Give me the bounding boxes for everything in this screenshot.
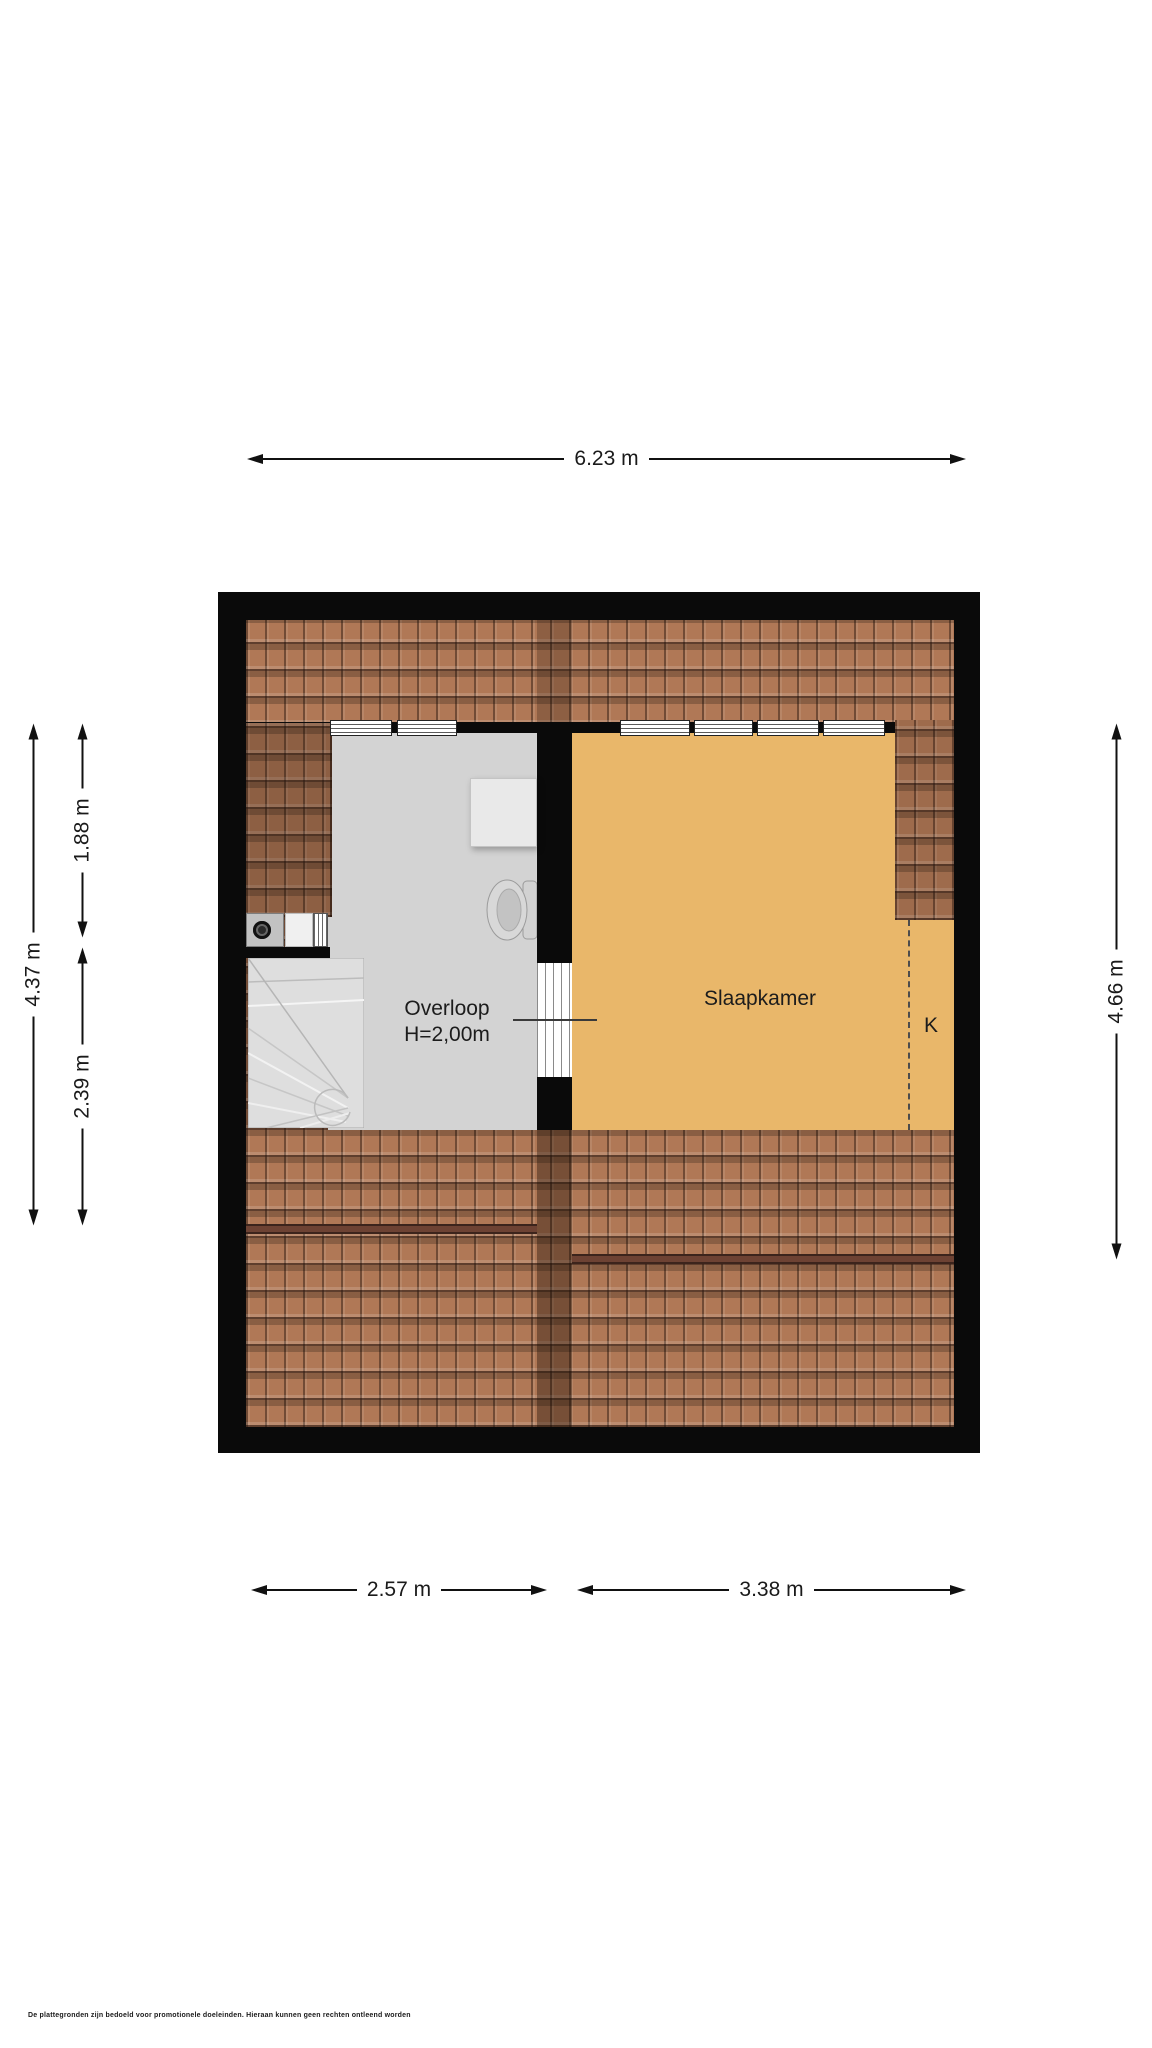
dimension-left-outer: 4.37 m	[21, 724, 46, 1226]
arrow-up-icon	[77, 723, 87, 739]
dimension-line	[32, 1017, 34, 1210]
window-slaapkamer-1	[620, 720, 690, 736]
stair-wall	[246, 947, 330, 958]
dimension-left-upper: 1.88 m	[70, 724, 95, 938]
dimension-right: 4.66 m	[1104, 724, 1129, 1260]
arrow-right-icon	[950, 1585, 966, 1595]
dimension-line	[267, 1589, 357, 1591]
center-wall-lower	[537, 1077, 572, 1130]
arrow-up-icon	[28, 723, 38, 739]
dimension-bottom-right-value: 3.38 m	[729, 1577, 813, 1602]
arrow-left-icon	[577, 1585, 593, 1595]
slaapkamer-label: Slaapkamer	[640, 986, 880, 1012]
storage-cabinet	[285, 913, 313, 947]
dimension-top-value: 6.23 m	[564, 446, 648, 471]
arrow-left-icon	[247, 454, 263, 464]
roof-ridge-right	[572, 1254, 954, 1264]
footer-disclaimer: De plattegronden zijn bedoeld voor promo…	[28, 2012, 411, 2019]
roof-seam-shadow-bottom	[537, 1130, 572, 1427]
arrow-right-icon	[531, 1585, 547, 1595]
roof-slope-right-patch	[895, 720, 954, 920]
floor-plan-page: Overloop H=2,00m Slaapkamer K 6.23 m 2.5…	[0, 0, 1152, 2048]
window-slaapkamer-3	[757, 720, 819, 736]
dimension-bottom-left: 2.57 m	[251, 1577, 547, 1602]
boiler-drum-icon	[253, 921, 271, 939]
floorplan-interior: Overloop H=2,00m Slaapkamer K	[246, 620, 954, 1427]
arrow-down-icon	[77, 922, 87, 938]
window-overloop-2	[397, 720, 457, 736]
roof-slope-left	[246, 723, 332, 917]
arrow-down-icon	[1111, 1244, 1121, 1260]
dimension-line	[814, 1589, 950, 1591]
arrow-up-icon	[77, 947, 87, 963]
window-slaapkamer-4	[823, 720, 885, 736]
dimension-line	[32, 739, 34, 932]
dimension-right-value: 4.66 m	[1104, 949, 1129, 1033]
closet-boundary-line	[908, 920, 910, 1130]
dimension-line	[649, 458, 950, 460]
dimension-line	[263, 458, 564, 460]
roof-ridge-left	[246, 1224, 537, 1234]
dimension-line	[1115, 739, 1117, 949]
boiler-unit	[246, 913, 284, 947]
dimension-bottom-right: 3.38 m	[577, 1577, 966, 1602]
dimension-left-outer-value: 4.37 m	[21, 932, 46, 1016]
arrow-down-icon	[77, 1210, 87, 1226]
window-slaapkamer-2	[694, 720, 753, 736]
dimension-left-lower-value: 2.39 m	[70, 1044, 95, 1128]
closet-label: K	[911, 1013, 951, 1039]
dimension-line	[81, 739, 83, 788]
dimension-line	[81, 873, 83, 922]
roof-slope-left-shadow	[246, 723, 330, 917]
roof-lower	[246, 1130, 954, 1427]
dimension-line	[81, 1129, 83, 1210]
dimension-line	[81, 963, 83, 1044]
storage-door	[313, 913, 328, 947]
roof-slope-right-shadow	[895, 720, 954, 920]
toilet	[483, 875, 537, 945]
arrow-down-icon	[28, 1210, 38, 1226]
roof-seam-shadow-top	[537, 620, 572, 722]
window-overloop-1	[330, 720, 392, 736]
overloop-height-note: H=2,00m	[342, 1022, 552, 1048]
dimension-line	[441, 1589, 531, 1591]
dimension-left-upper-value: 1.88 m	[70, 788, 95, 872]
arrow-left-icon	[251, 1585, 267, 1595]
dimension-line	[1115, 1034, 1117, 1244]
dimension-left-lower: 2.39 m	[70, 948, 95, 1226]
dimension-bottom-left-value: 2.57 m	[357, 1577, 441, 1602]
center-wall-upper	[537, 723, 572, 963]
overloop-name: Overloop	[342, 996, 552, 1022]
dimension-line	[593, 1589, 729, 1591]
desk	[470, 778, 537, 847]
arrow-right-icon	[950, 454, 966, 464]
overloop-label: Overloop H=2,00m	[342, 996, 552, 1048]
arrow-up-icon	[1111, 723, 1121, 739]
dimension-top: 6.23 m	[247, 446, 966, 471]
